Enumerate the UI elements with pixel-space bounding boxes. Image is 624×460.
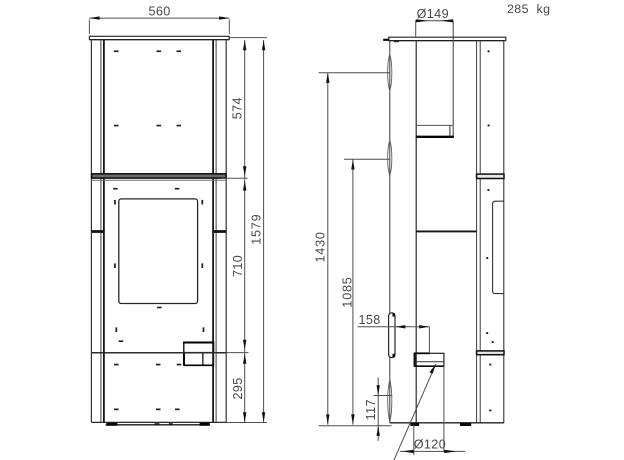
svg-text:158: 158 (358, 313, 380, 327)
svg-text:574: 574 (231, 97, 245, 119)
svg-text:1085: 1085 (341, 276, 355, 307)
svg-text:Ø149: Ø149 (417, 7, 449, 21)
svg-text:560: 560 (148, 5, 170, 19)
svg-text:285 kg: 285 kg (507, 2, 550, 16)
svg-text:1430: 1430 (314, 231, 328, 262)
svg-text:1579: 1579 (250, 214, 264, 245)
svg-text:Ø120: Ø120 (414, 437, 446, 451)
svg-text:710: 710 (231, 255, 245, 277)
svg-text:295: 295 (231, 377, 245, 399)
svg-text:117: 117 (364, 399, 378, 420)
